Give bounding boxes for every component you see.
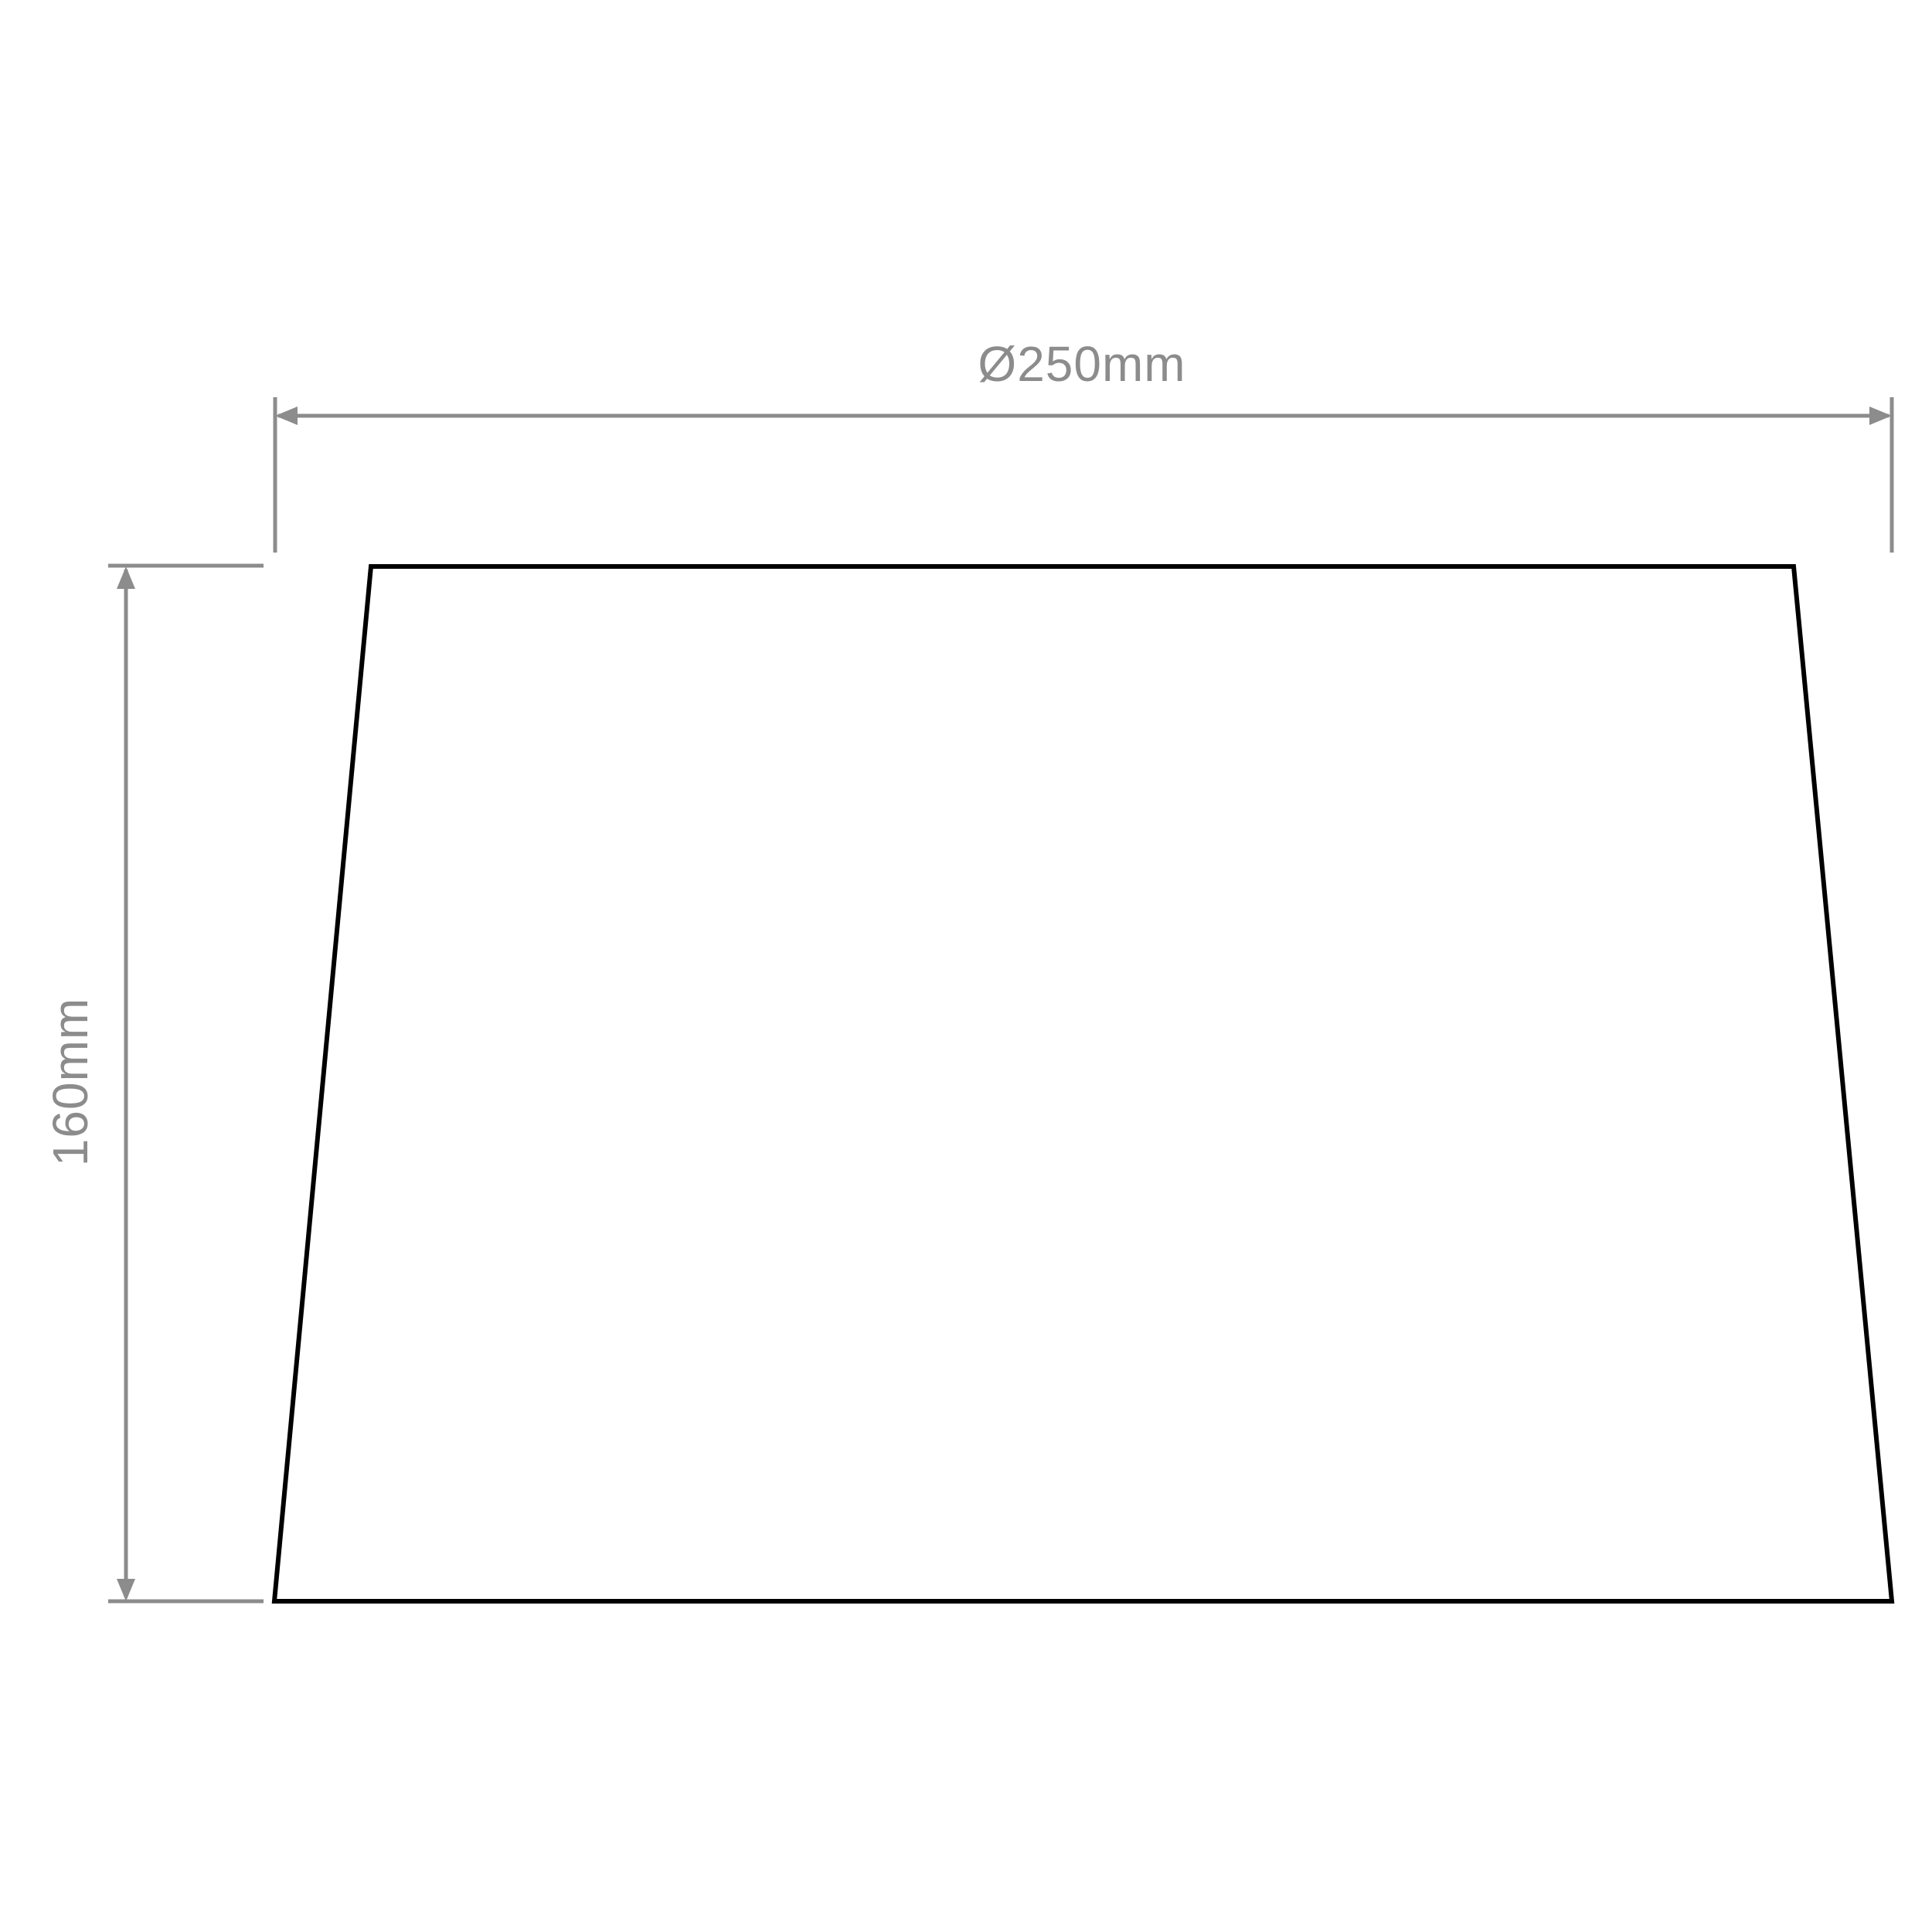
- arrowhead-up-icon: [117, 566, 135, 589]
- lampshade-outline: [274, 566, 1892, 1601]
- arrowhead-down-icon: [117, 1579, 135, 1601]
- diameter-label: Ø250mm: [978, 336, 1185, 392]
- arrowhead-right-icon: [1869, 406, 1892, 425]
- diagram-canvas: Ø250mm 160mm: [0, 0, 1932, 1932]
- height-label: 160mm: [43, 998, 98, 1166]
- arrowhead-left-icon: [275, 406, 298, 425]
- dimension-drawing-svg: Ø250mm 160mm: [0, 0, 1932, 1932]
- height-dimension: 160mm: [43, 566, 264, 1601]
- diameter-dimension: Ø250mm: [275, 336, 1892, 553]
